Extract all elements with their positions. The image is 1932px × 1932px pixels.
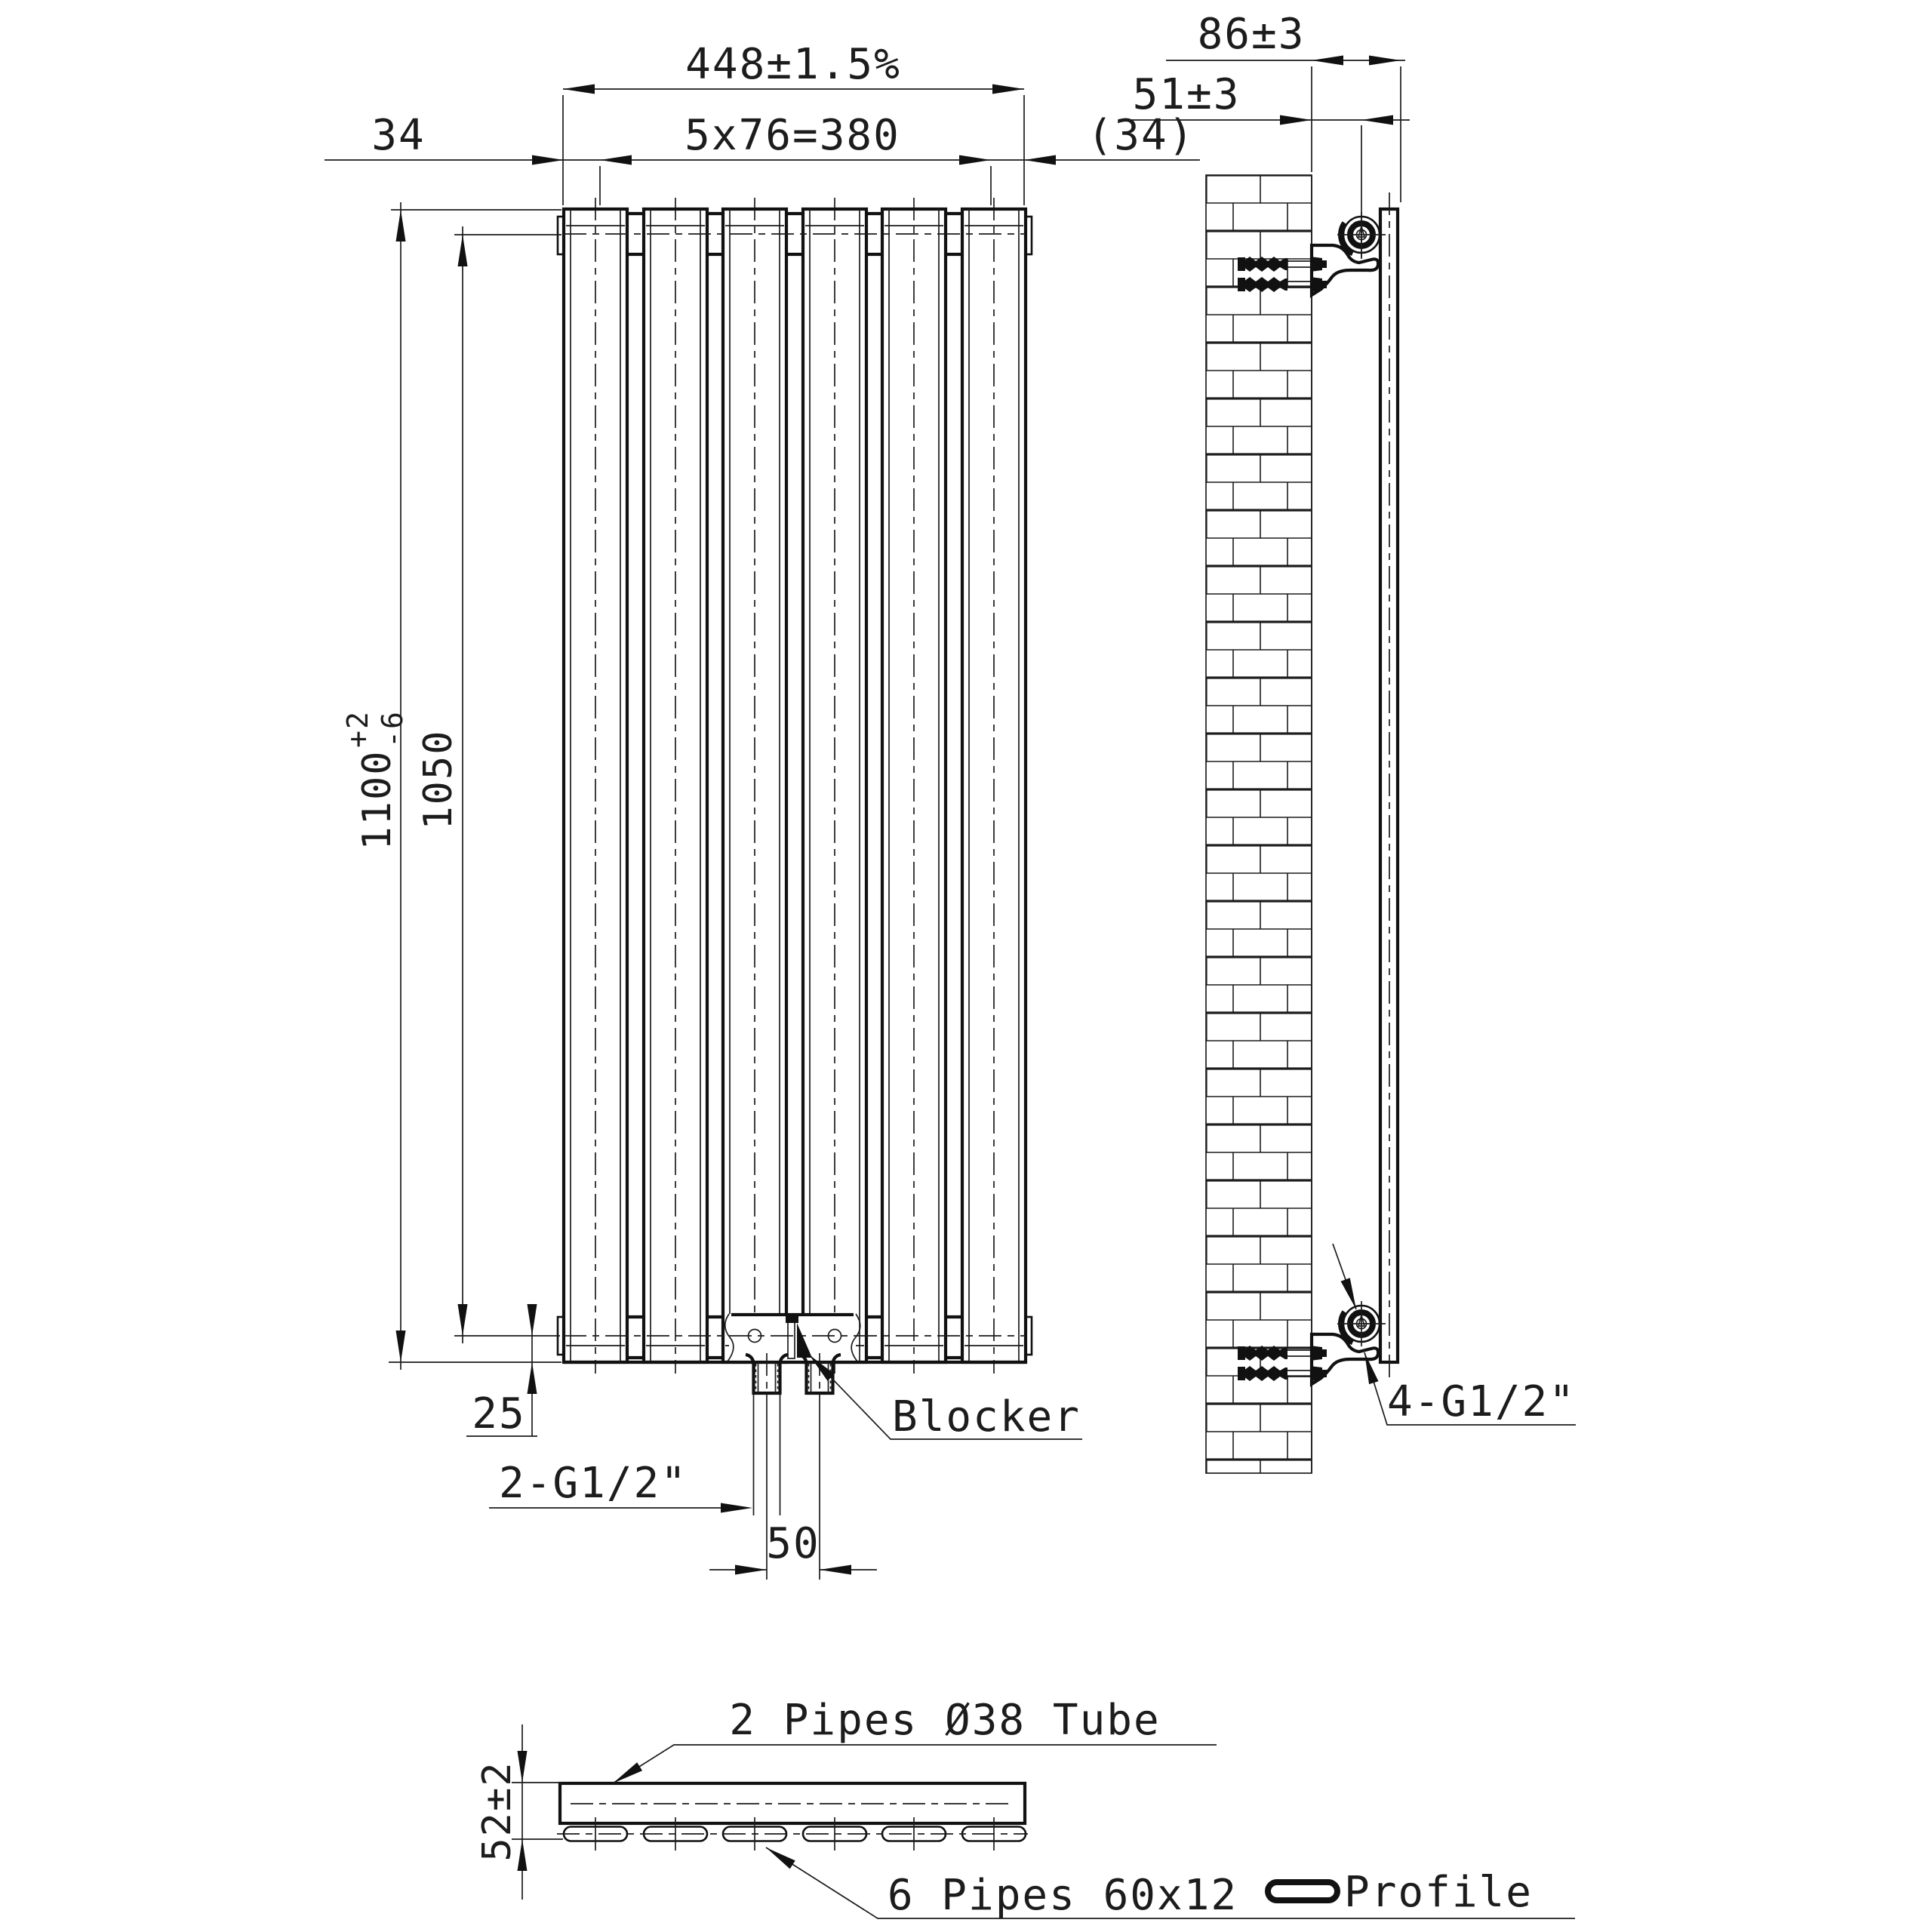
dim-overall-height-label: 1100 (355, 749, 400, 850)
front-view (558, 198, 1032, 1405)
dim-overall-width-label: 448±1.5% (685, 40, 901, 89)
side-ports-label: 4-G1/2" (1387, 1377, 1576, 1426)
blocker-plug (786, 1315, 798, 1323)
bottom-hub-breakout (563, 1314, 1026, 1362)
dim-wall-to-tube-label: 51±3 (1133, 70, 1241, 119)
section-view: 52±2 2 Pipes Ø38 Tube 6 Pipes 60x12 Prof… (475, 1696, 1575, 1920)
header-connectors (558, 214, 1032, 1358)
bottom-port-stub (798, 1353, 841, 1405)
technical-drawing-radiator: 448±1.5% 34 5x76=380 (34) 1100 +2 -6 105… (0, 0, 1932, 1932)
blocker-label: Blocker (892, 1392, 1081, 1441)
top-tubes-label: 2 Pipes Ø38 Tube (729, 1696, 1160, 1745)
dim-overall-height-tol-plus: +2 (341, 710, 374, 748)
dim-hub-distance-label: 1050 (416, 729, 461, 829)
dim-end-offset-left-label: 34 (371, 111, 425, 160)
bottom-pipes-label: 6 Pipes 60x12 (888, 1871, 1238, 1920)
dim-panel-pitch-label: 5x76=380 (685, 111, 900, 160)
bottom-ports-label: 2-G1/2" (499, 1459, 688, 1508)
dim-depth-section-label: 52±2 (475, 1761, 520, 1861)
side-view: 86±3 51±3 4-G1/2" (1124, 10, 1576, 1473)
panel-centerlines (595, 198, 994, 1374)
brick-wall (1206, 175, 1312, 1473)
radiator-panels (564, 209, 1026, 1362)
dim-bottom-offset-label: 25 (472, 1389, 525, 1438)
profile-label: Profile (1344, 1868, 1533, 1917)
profile-shape-icon (1268, 1882, 1337, 1900)
dim-depth-overall-label: 86±3 (1198, 10, 1306, 59)
drawing-svg: 448±1.5% 34 5x76=380 (34) 1100 +2 -6 105… (0, 0, 1932, 1932)
dim-port-spacing-label: 50 (766, 1519, 820, 1568)
bottom-port-stub (746, 1353, 788, 1405)
dim-overall-height-tol-minus: -6 (376, 710, 409, 748)
